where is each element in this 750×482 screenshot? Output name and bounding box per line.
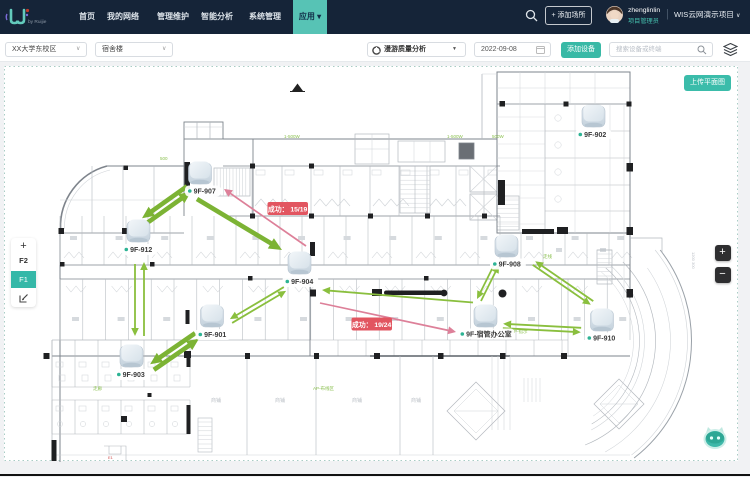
svg-text:走线: 走线 (543, 253, 552, 260)
svg-text:商铺: 商铺 (352, 397, 362, 404)
svg-text:1-500W: 1-500W (284, 134, 301, 139)
svg-text:9F-908: 9F-908 (499, 262, 521, 269)
svg-text:AP-布线区: AP-布线区 (313, 385, 335, 392)
svg-text:E1: E1 (108, 455, 114, 460)
svg-text:9F-901: 9F-901 (204, 332, 226, 339)
svg-text:9F-903: 9F-903 (123, 372, 145, 379)
svg-text:500: 500 (160, 156, 168, 161)
svg-text:商铺: 商铺 (275, 397, 285, 404)
svg-text:9F-910: 9F-910 (593, 336, 615, 343)
svg-text:9F-902: 9F-902 (584, 132, 606, 139)
svg-text:9F-宿管办公室: 9F-宿管办公室 (466, 330, 512, 339)
svg-text:1200 300: 1200 300 (691, 252, 696, 269)
svg-text:成功： 15/19: 成功： 15/19 (268, 204, 308, 213)
svg-text:1-500W: 1-500W (447, 134, 464, 139)
svg-text:商铺: 商铺 (411, 397, 421, 404)
svg-text:商铺: 商铺 (211, 397, 221, 404)
svg-text:500W: 500W (492, 134, 505, 139)
svg-text:9F-912: 9F-912 (130, 247, 152, 254)
svg-text:9F-904: 9F-904 (291, 279, 313, 286)
svg-text:by Ruijie: by Ruijie (28, 19, 47, 25)
svg-text:成功： 19/24: 成功： 19/24 (352, 320, 392, 329)
svg-text:走廊: 走廊 (93, 385, 102, 392)
svg-text:9F-907: 9F-907 (194, 189, 216, 196)
